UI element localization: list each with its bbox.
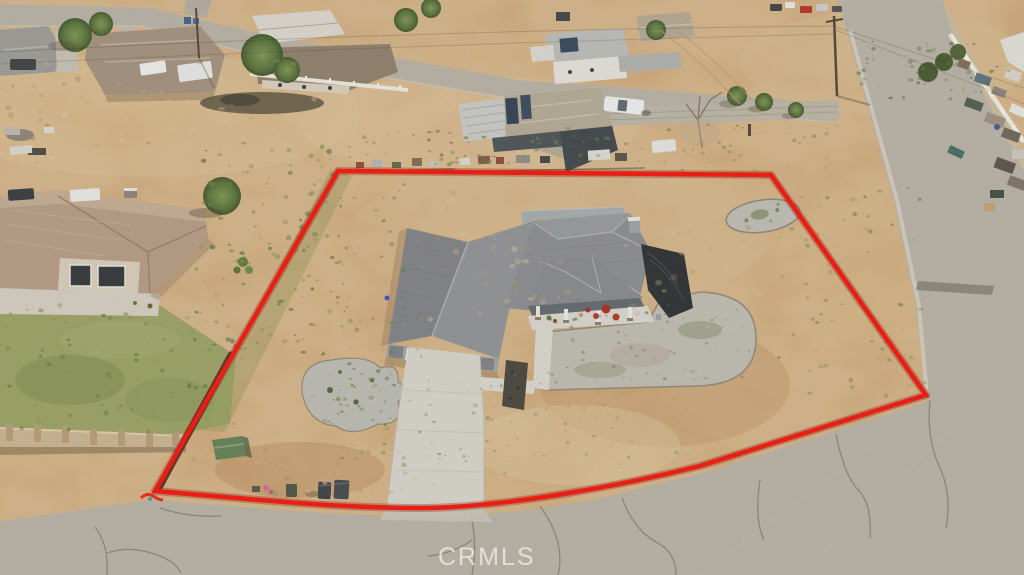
crmls-watermark: CRMLS bbox=[438, 543, 536, 572]
aerial-photo: CRMLS bbox=[0, 0, 1024, 575]
aerial-photo-canvas bbox=[0, 0, 1024, 575]
